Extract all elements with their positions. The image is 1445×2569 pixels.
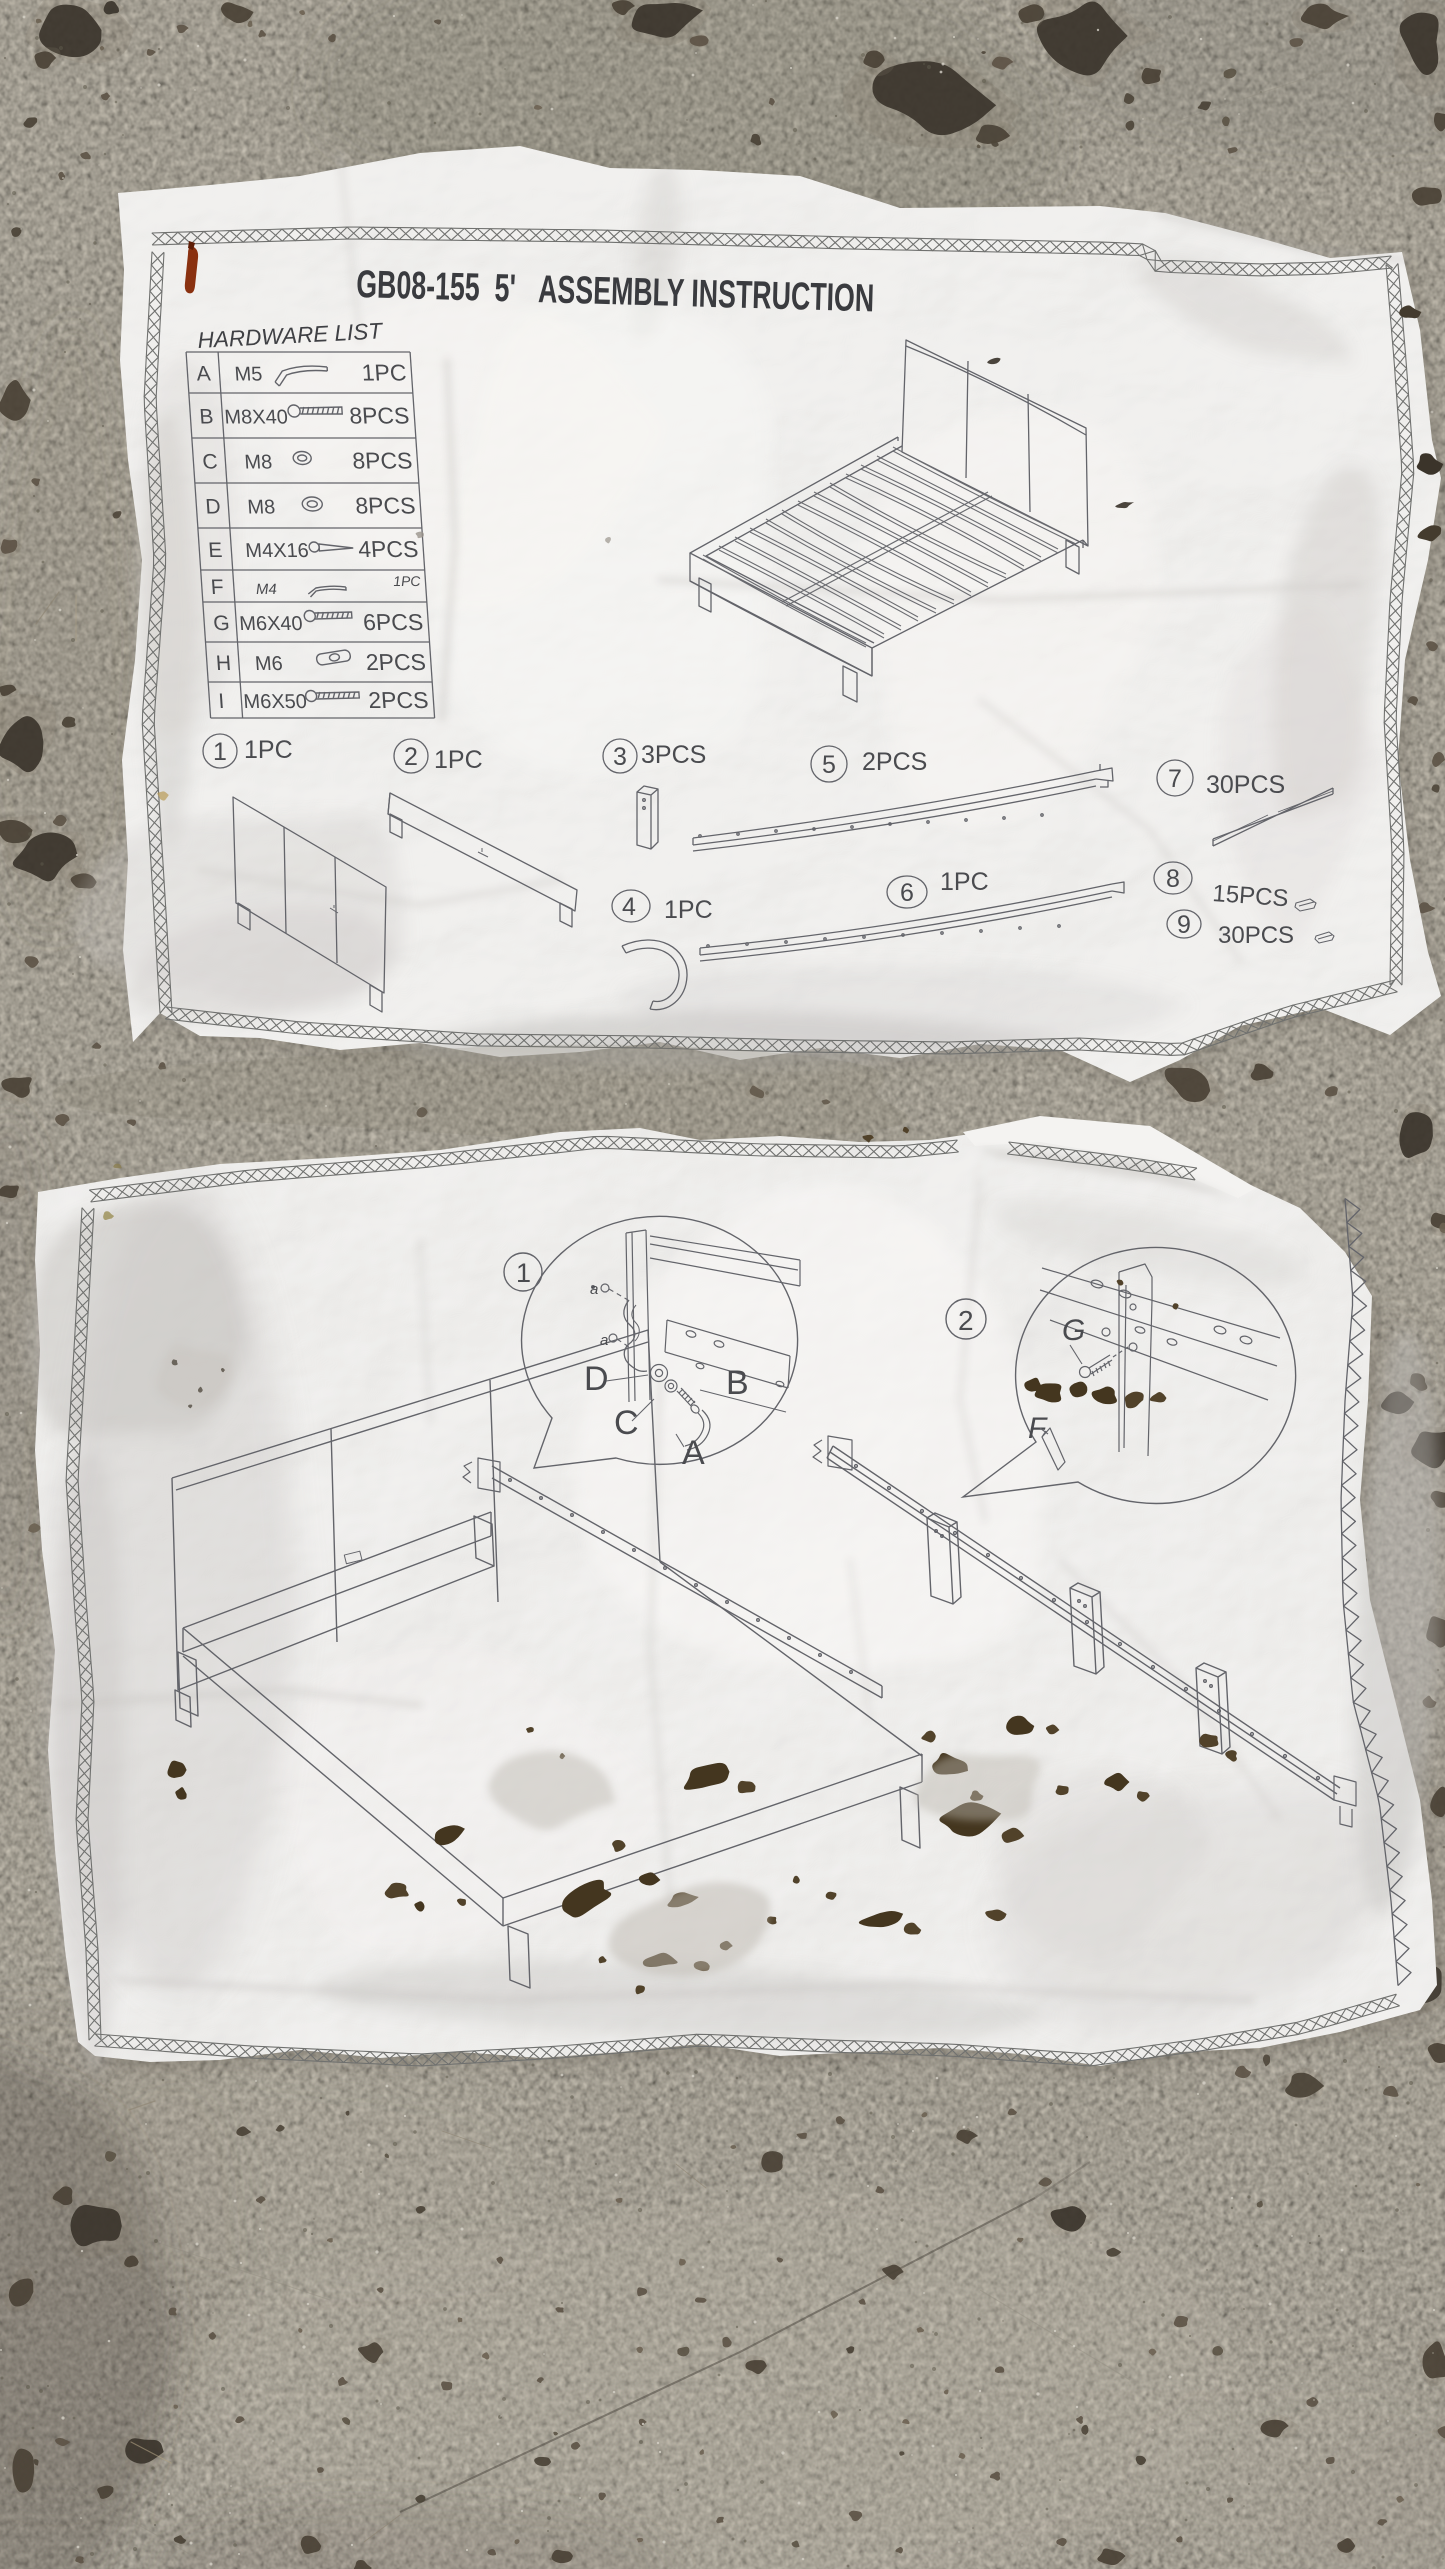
svg-text:G: G (1062, 1314, 1085, 1347)
svg-text:M8: M8 (244, 452, 273, 474)
svg-text:6PCS: 6PCS (362, 609, 424, 635)
svg-text:1PC: 1PC (361, 360, 407, 386)
svg-text:E: E (208, 539, 224, 562)
svg-text:M6: M6 (254, 653, 283, 675)
svg-text:8PCS: 8PCS (351, 448, 413, 474)
svg-text:D: D (584, 1360, 609, 1398)
svg-text:15PCS: 15PCS (1212, 880, 1290, 912)
svg-text:M4X16: M4X16 (245, 540, 310, 562)
svg-text:D: D (205, 496, 222, 519)
svg-text:C: C (614, 1404, 639, 1442)
svg-text:a: a (590, 1281, 598, 1298)
svg-text:8: 8 (1166, 865, 1180, 893)
svg-text:6: 6 (900, 879, 914, 907)
svg-text:30PCS: 30PCS (1206, 771, 1285, 799)
svg-text:8PCS: 8PCS (348, 403, 410, 429)
svg-text:4: 4 (622, 893, 636, 921)
svg-text:1PC: 1PC (434, 746, 483, 774)
svg-text:A: A (682, 1434, 705, 1472)
svg-text:F: F (1028, 1412, 1048, 1445)
svg-text:2: 2 (404, 743, 418, 771)
svg-text:M4: M4 (255, 581, 277, 598)
svg-text:B: B (726, 1364, 749, 1402)
svg-text:3: 3 (613, 743, 627, 771)
svg-text:2: 2 (958, 1305, 974, 1336)
svg-text:1PC: 1PC (664, 896, 713, 924)
svg-text:F: F (210, 576, 224, 599)
svg-text:7: 7 (1168, 765, 1182, 793)
svg-text:H: H (215, 652, 232, 675)
svg-text:C: C (202, 451, 219, 474)
svg-text:5: 5 (822, 751, 836, 779)
svg-text:30PCS: 30PCS (1218, 922, 1294, 949)
svg-text:9: 9 (1177, 911, 1191, 939)
svg-text:G: G (213, 612, 231, 635)
svg-text:B: B (199, 406, 215, 429)
svg-text:8PCS: 8PCS (354, 493, 416, 519)
svg-text:M8: M8 (247, 497, 276, 519)
svg-text:M8X40: M8X40 (224, 407, 289, 429)
svg-text:M6X40: M6X40 (239, 613, 304, 635)
svg-text:1PC: 1PC (940, 868, 989, 896)
svg-text:1PC: 1PC (393, 573, 422, 589)
svg-text:2PCS: 2PCS (365, 649, 427, 675)
svg-text:M6X50: M6X50 (243, 691, 308, 713)
svg-text:2PCS: 2PCS (367, 687, 429, 713)
svg-text:M5: M5 (234, 364, 263, 386)
svg-text:1: 1 (213, 738, 227, 766)
svg-text:4PCS: 4PCS (357, 536, 419, 562)
svg-text:2PCS: 2PCS (862, 748, 927, 776)
svg-text:3PCS: 3PCS (641, 741, 706, 769)
svg-text:1PC: 1PC (244, 736, 293, 764)
svg-text:A: A (196, 363, 212, 386)
svg-text:1: 1 (516, 1258, 531, 1288)
svg-text:a: a (600, 1332, 608, 1349)
